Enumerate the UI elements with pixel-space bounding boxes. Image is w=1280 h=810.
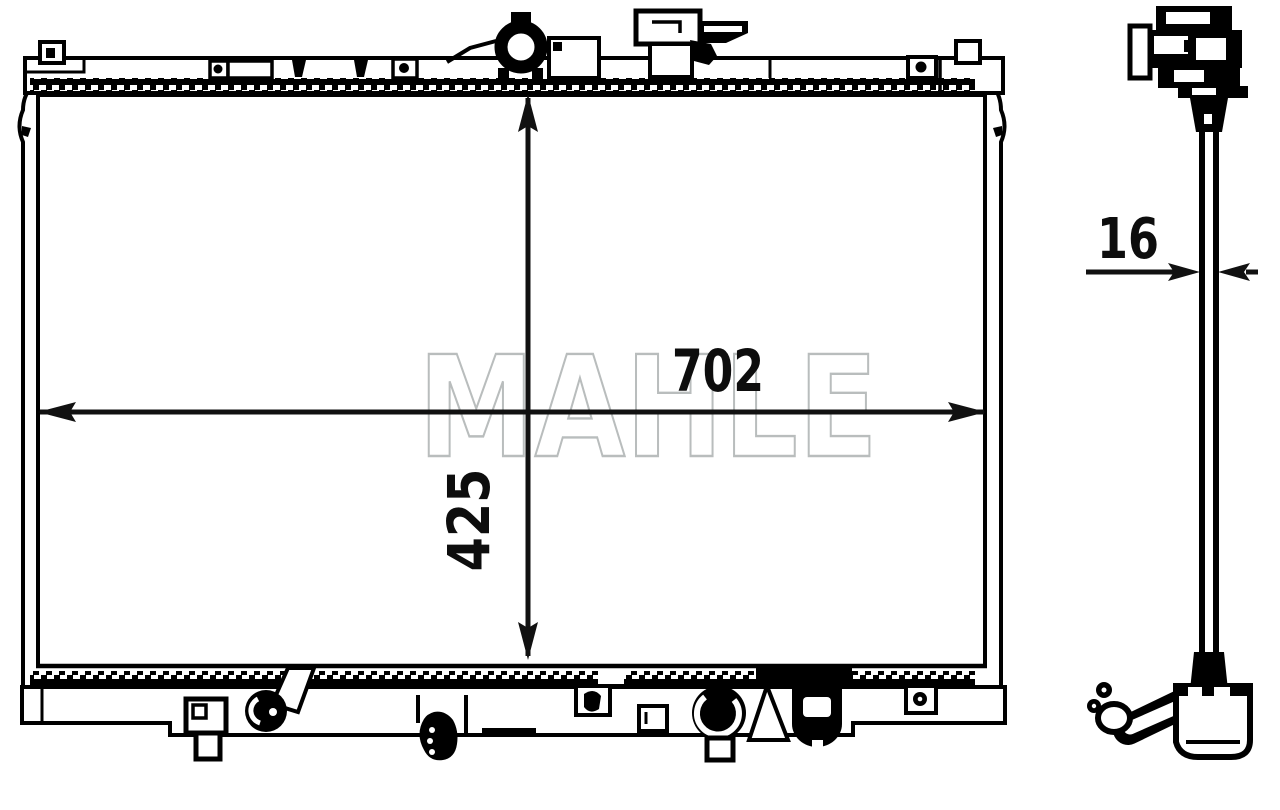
top-clip-4 bbox=[908, 57, 936, 78]
depth-dimension-label: 16 bbox=[1097, 207, 1159, 272]
top-clip-3 bbox=[393, 59, 417, 78]
bottom-right-fitting bbox=[906, 686, 936, 713]
watermark-text: MAHLE bbox=[418, 327, 878, 490]
top-right-tab bbox=[956, 41, 980, 63]
outlet-fitting bbox=[792, 680, 842, 751]
radiator-technical-drawing: MAHLE bbox=[0, 0, 1280, 810]
height-dimension-label: 425 bbox=[435, 469, 503, 572]
top-left-tab bbox=[40, 42, 64, 63]
bottom-circular-fitting bbox=[245, 690, 287, 732]
top-serrated-joint bbox=[30, 78, 975, 93]
top-clip-2 bbox=[228, 61, 272, 78]
technical-drawing-svg: MAHLE bbox=[0, 0, 1280, 810]
width-dimension-label: 702 bbox=[672, 337, 764, 405]
bottom-bracket bbox=[576, 686, 610, 715]
